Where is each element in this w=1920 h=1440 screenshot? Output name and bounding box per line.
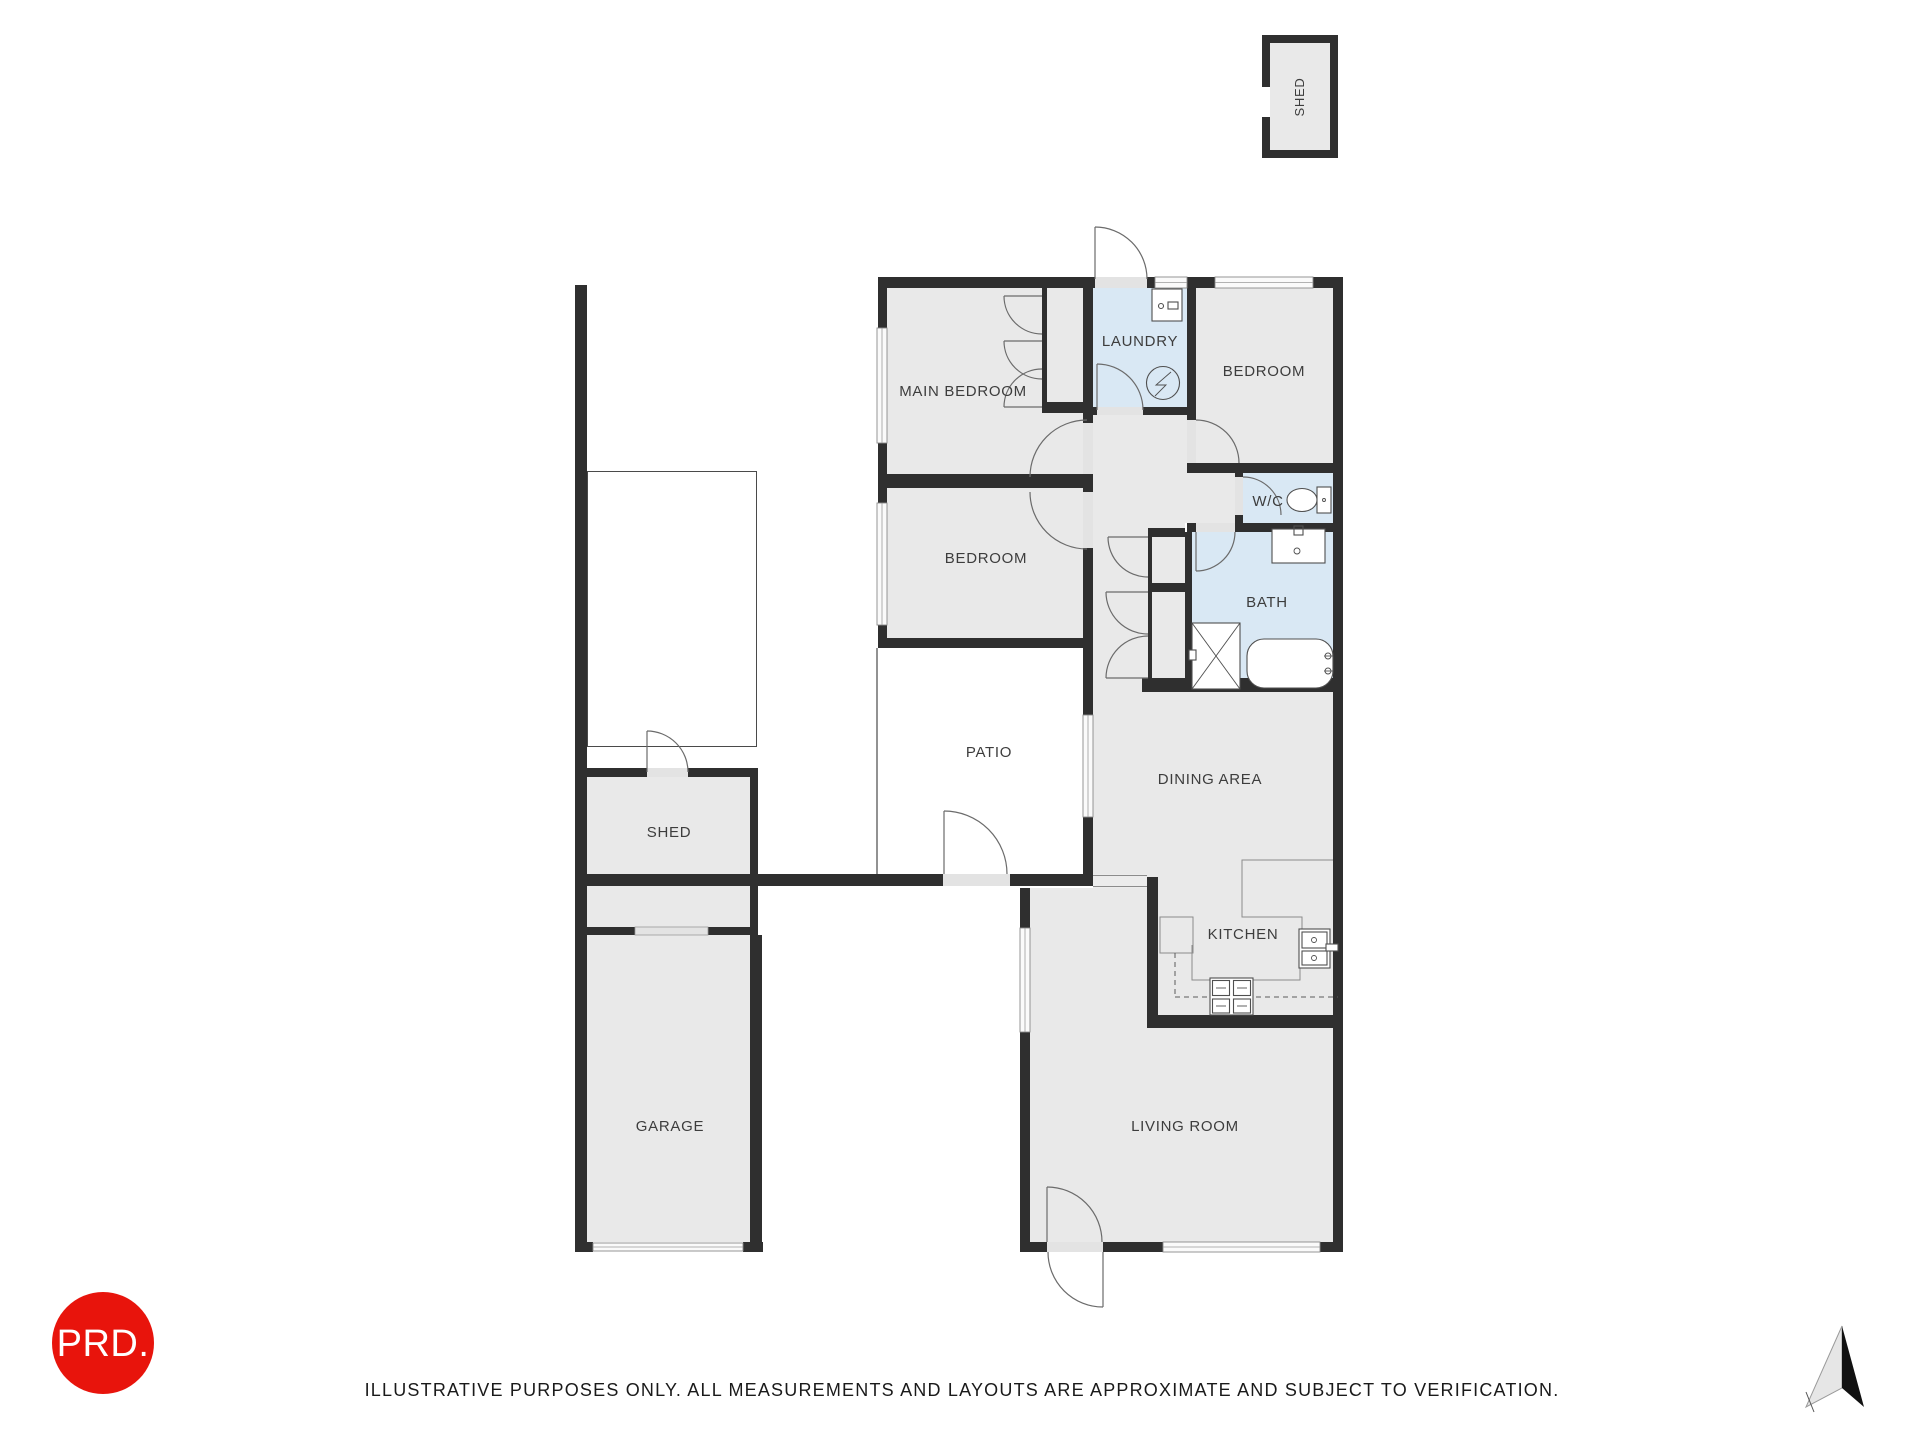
label-shed-top: SHED: [1292, 78, 1307, 117]
shower-icon: [1189, 623, 1240, 689]
washing-machine-icon: [1152, 289, 1182, 321]
label-main-bedroom: MAIN BEDROOM: [899, 383, 1027, 400]
label-dining: DINING AREA: [1158, 771, 1262, 788]
room-living: [1147, 1028, 1333, 1242]
label-bath: BATH: [1246, 594, 1288, 611]
room-main-bedroom: [887, 288, 1083, 474]
floor-plan-page: SHED MAIN BEDROOM LAUNDRY BEDROOM W/C BE…: [0, 0, 1920, 1440]
room-carport: [587, 886, 750, 927]
north-arrow-icon: [1806, 1326, 1864, 1412]
label-garage: GARAGE: [636, 1118, 704, 1135]
label-kitchen: KITCHEN: [1208, 926, 1279, 943]
hallway-lower: [1093, 523, 1185, 692]
label-shed-left: SHED: [647, 824, 691, 841]
floor-plan: SHED MAIN BEDROOM LAUNDRY BEDROOM W/C BE…: [0, 0, 1920, 1440]
label-bedroom-left: BEDROOM: [945, 550, 1027, 567]
label-laundry: LAUNDRY: [1102, 333, 1178, 350]
opening-dining-living: [1093, 874, 1147, 888]
vanity-sink-icon: [1272, 526, 1325, 563]
disclaimer-text: ILLUSTRATIVE PURPOSES ONLY. ALL MEASUREM…: [365, 1380, 1560, 1400]
brand-logo: PRD.: [52, 1292, 154, 1394]
courtyard-outline: [588, 472, 757, 747]
logo-text: PRD.: [57, 1323, 150, 1365]
toilet-icon: [1287, 487, 1331, 513]
label-patio: PATIO: [966, 744, 1012, 761]
label-living: LIVING ROOM: [1131, 1118, 1239, 1135]
label-wc: W/C: [1252, 493, 1283, 510]
room-garage: [587, 935, 750, 1242]
bathtub-icon: [1247, 639, 1333, 688]
label-bedroom-right: BEDROOM: [1223, 363, 1305, 380]
stove-icon: [1210, 978, 1253, 1015]
